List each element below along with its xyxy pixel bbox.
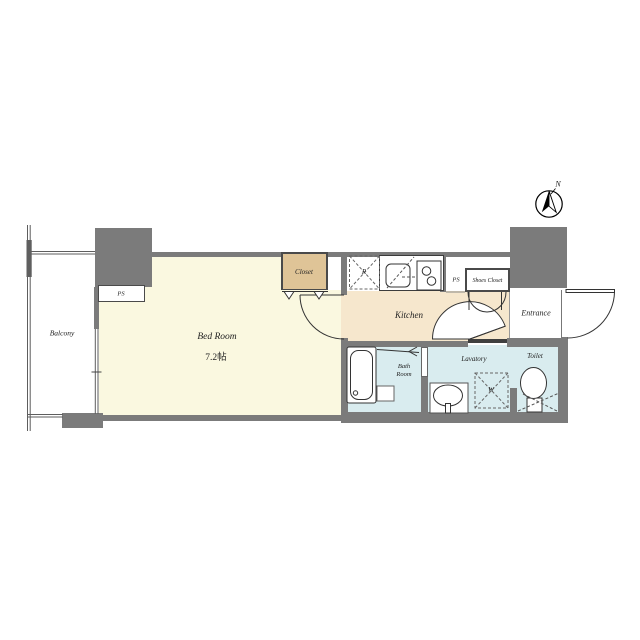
- wall-bottom-right: [341, 412, 568, 423]
- wall-lavatory-toilet-stub: [510, 388, 517, 413]
- bedroom-label: Bed Room: [197, 332, 236, 342]
- pillar-top-right: [510, 227, 567, 288]
- compass-north-label: N: [555, 180, 560, 189]
- kitchen-label: Kitchen: [395, 310, 423, 320]
- entrance-label: Entrance: [521, 309, 550, 318]
- balcony-label: Balcony: [50, 329, 75, 338]
- wall-bedroom-kitchen-upper: [341, 252, 347, 295]
- kitchen-floor: [347, 291, 510, 341]
- lavatory-label: Lavatory: [461, 355, 486, 363]
- kitchen-counter: [379, 255, 444, 291]
- floor-plan: Balcony Bed Room 7.2帖 Closet Kitchen PS …: [0, 0, 640, 640]
- closet-label: Closet: [295, 268, 313, 276]
- wall-wet-top-left: [341, 341, 468, 347]
- wall-bath-lavatory: [421, 377, 428, 413]
- wall-right-lower: [558, 337, 568, 414]
- wall-balcony-end-block: [62, 413, 103, 428]
- wall-bedroom-bath: [341, 338, 348, 422]
- wall-bedroom-bottom: [95, 415, 345, 421]
- toilet-label: Toilet: [527, 352, 543, 360]
- ps-right-label: PS: [452, 277, 459, 284]
- bath-door: [421, 347, 428, 377]
- bath-room-label: Bath Room: [390, 363, 418, 379]
- bedroom-size-label: 7.2帖: [205, 349, 226, 363]
- lavatory-door-sill: [468, 339, 507, 343]
- closet-niche: [328, 257, 341, 290]
- refrigerator-label: R: [362, 268, 366, 276]
- bedroom-doorway-floor: [341, 295, 347, 338]
- washer-label: W: [488, 386, 494, 394]
- shoes-closet-label: Shoes Closet: [473, 278, 503, 284]
- compass-icon: [536, 189, 562, 218]
- ps-left-label: PS: [117, 291, 124, 298]
- pillar-top-left: [95, 228, 152, 287]
